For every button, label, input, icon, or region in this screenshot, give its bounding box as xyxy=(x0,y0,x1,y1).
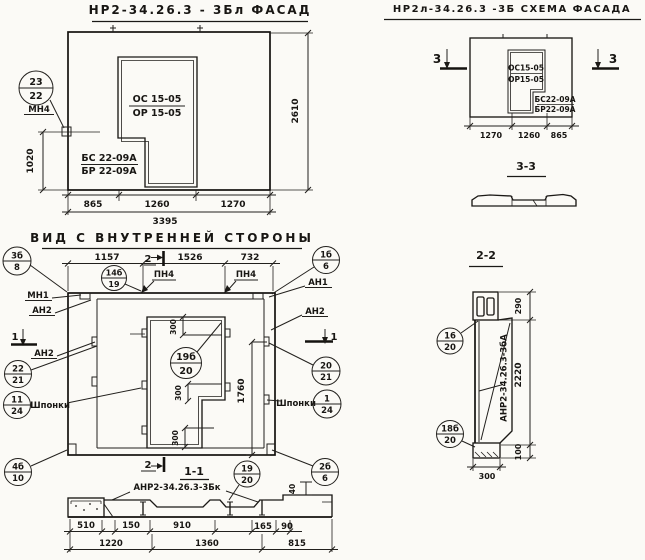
s11-dim-815: 815 xyxy=(288,539,306,549)
section-2-label: 2 xyxy=(145,460,152,471)
s11-dim-150: 150 xyxy=(122,521,140,531)
s22-dim-300: 300 xyxy=(479,472,496,481)
section-2-label: 2 xyxy=(145,254,152,265)
s11-dim-165: 165 xyxy=(254,522,272,532)
callout-bot: 24 xyxy=(321,406,333,416)
facade-label-mn4: МН4 xyxy=(28,105,50,115)
inner-dim-300-3: 300 xyxy=(171,430,180,446)
an1-label: АН1 xyxy=(308,278,328,288)
section-1-label: 1 xyxy=(12,332,19,343)
s22-dim-100: 100 xyxy=(514,443,523,460)
callout-bot: 6 xyxy=(322,474,328,484)
shponki-label: Шпонки xyxy=(276,399,316,409)
callout-top: 16 xyxy=(444,332,456,342)
facade-dim-1270: 1270 xyxy=(220,200,245,210)
schema-mark-or: ОР15-05 xyxy=(508,75,544,84)
an2-label: АН2 xyxy=(34,349,54,359)
callout-bot: 20 xyxy=(444,436,456,446)
inner-dim-300-2: 300 xyxy=(174,385,183,401)
callout-bot: 20 xyxy=(179,366,193,377)
callout-mn4-bot: 22 xyxy=(29,91,42,102)
section-11-drawing: 2 1-1 19 20 АНР2-34.26.3-3Бк 40 xyxy=(64,457,338,553)
facade-drawing: НР2-34.26.3 - 3Бл ФАСАД ОС 15-05 ОР 15-0… xyxy=(19,3,313,227)
callout-bot: 8 xyxy=(14,263,20,273)
s22-dim-2220: 2220 xyxy=(514,362,524,387)
facade-mark-os: ОС 15-05 xyxy=(133,94,182,105)
inner-dim-1526: 1526 xyxy=(177,253,202,263)
callout-top: 14б xyxy=(106,268,123,278)
mn1-label: МН1 xyxy=(27,291,49,301)
s11-dim-910: 910 xyxy=(173,521,191,531)
section-mark-1-left: 1 xyxy=(11,329,37,346)
shponki-label: Шпонки xyxy=(30,401,70,411)
inner-dim-1157: 1157 xyxy=(94,253,119,263)
callout-4b-10: 4б 10 xyxy=(5,450,68,486)
callout-1b-6: 1б 6 xyxy=(272,247,340,295)
an2-label: АН2 xyxy=(305,307,325,317)
schema-dim-1270: 1270 xyxy=(480,131,503,140)
callout-14b-19: 14б 19 xyxy=(102,266,142,292)
section-22-drawing: 2-2 АНР2-34.26.3-3бА 290 2220 100 300 16… xyxy=(437,249,537,481)
callout-bot: 6 xyxy=(323,262,329,272)
schema-mark-bs: БС22-09А xyxy=(534,95,575,104)
callout-bot: 21 xyxy=(12,376,24,386)
label-an1: АН1 xyxy=(269,278,332,297)
callout-19b-20: 19б 20 xyxy=(171,323,222,379)
section-1-label: 1 xyxy=(331,332,338,343)
schema-dim-865: 865 xyxy=(551,131,568,140)
s11-dim-1360: 1360 xyxy=(195,539,219,549)
label-pn4-1: ПН4 xyxy=(141,270,176,293)
callout-16-20: 16 20 xyxy=(437,321,478,354)
inner-view-title: ВИД С ВНУТРЕННЕЙ СТОРОНЫ xyxy=(30,230,314,245)
callout-3b-8: 3б 8 xyxy=(3,247,67,292)
blueprint-svg: НР2-34.26.3 - 3Бл ФАСАД ОС 15-05 ОР 15-0… xyxy=(0,0,645,560)
pn4-label: ПН4 xyxy=(236,270,256,280)
an2-label: АН2 xyxy=(32,306,52,316)
facade-dim-3395: 3395 xyxy=(152,217,177,227)
schema-drawing: НР2л-34.26.3 -3Б СХЕМА ФАСАДА ОС15-05 ОР… xyxy=(384,4,641,206)
callout-top: 1 xyxy=(324,395,330,405)
callout-bot: 21 xyxy=(320,373,332,383)
callout-bot: 24 xyxy=(11,407,23,417)
section-mark-1-right: 1 xyxy=(305,329,338,344)
blueprint-sheet: НР2-34.26.3 - 3Бл ФАСАД ОС 15-05 ОР 15-0… xyxy=(0,0,645,560)
callout-top: 19б xyxy=(176,352,196,363)
schema-title: НР2л-34.26.3 -3Б СХЕМА ФАСАДА xyxy=(393,4,631,15)
callout-top: 18б xyxy=(441,424,459,435)
schema-mark-os: ОС15-05 xyxy=(508,64,544,73)
section-3-label: 3 xyxy=(609,52,617,66)
section-3-label: 3 xyxy=(433,52,441,66)
inner-dim-1760: 1760 xyxy=(237,378,247,403)
label-an2-right: АН2 xyxy=(271,307,328,330)
pn4-label: ПН4 xyxy=(154,270,174,280)
facade-dim-1260: 1260 xyxy=(144,200,169,210)
s11-dim-1220: 1220 xyxy=(99,539,123,549)
s11-dim-510: 510 xyxy=(77,521,95,531)
s22-dim-290: 290 xyxy=(514,297,523,314)
schema-dim-1260: 1260 xyxy=(518,131,541,140)
facade-mark-br: БР 22-09А xyxy=(81,166,137,177)
section-33-title: 3-3 xyxy=(516,160,536,173)
facade-mark-bs: БС 22-09А xyxy=(81,153,137,164)
schema-mark-br: БР22-09А xyxy=(534,105,575,114)
section-22-mark-label: АНР2-34.26.3-3бА xyxy=(499,334,510,422)
callout-top: 11 xyxy=(11,396,23,406)
section-11-title: 1-1 xyxy=(184,465,204,478)
facade-title: НР2-34.26.3 - 3Бл ФАСАД xyxy=(89,3,312,17)
facade-mark-or: ОР 15-05 xyxy=(133,108,182,119)
s11-dim-90: 90 xyxy=(281,522,293,532)
callout-bot: 20 xyxy=(444,343,456,353)
facade-dim-1020: 1020 xyxy=(26,148,36,173)
callout-bot: 20 xyxy=(241,476,253,486)
section-mark-3-left: 3 xyxy=(433,49,467,69)
callout-top: 1б xyxy=(320,250,332,261)
callout-top: 19 xyxy=(241,465,253,475)
callout-18b-20: 18б 20 xyxy=(437,421,476,448)
section-11-dim-40: 40 xyxy=(288,484,297,494)
callout-top: 20 xyxy=(320,362,332,372)
callout-2b-6: 2б 6 xyxy=(272,450,339,486)
section-22-title: 2-2 xyxy=(476,249,496,262)
callout-top: 2б xyxy=(319,462,331,473)
section-11-mark-label: АНР2-34.26.3-3Бк xyxy=(133,483,220,493)
callout-mn4: 23 22 МН4 xyxy=(19,71,71,136)
facade-dim-865: 865 xyxy=(84,200,103,210)
label-an2-left-1: АН2 xyxy=(29,300,91,316)
callout-top: 4б xyxy=(12,462,24,473)
callout-bot: 19 xyxy=(108,280,120,289)
callout-20-21: 20 21 xyxy=(269,343,340,385)
section-mark-3-right: 3 xyxy=(592,49,619,69)
facade-dim-2610: 2610 xyxy=(291,98,301,123)
callout-11-24-shponki: 11 24 Шпонки xyxy=(4,388,142,419)
callout-top: 3б xyxy=(11,251,23,262)
inner-dim-732: 732 xyxy=(241,253,260,263)
callout-1-24-shponki: Шпонки 1 24 xyxy=(267,390,341,418)
section-mark-2-bottom: 2 xyxy=(141,457,164,472)
callout-top: 22 xyxy=(12,365,24,375)
inner-view-drawing: ВИД С ВНУТРЕННЕЙ СТОРОНЫ 1157 1526 732 2 xyxy=(3,230,341,486)
callout-mn4-top: 23 xyxy=(29,77,42,88)
callout-bot: 10 xyxy=(12,474,24,484)
label-pn4-2: ПН4 xyxy=(224,270,258,293)
inner-dim-300-1: 300 xyxy=(169,319,178,335)
